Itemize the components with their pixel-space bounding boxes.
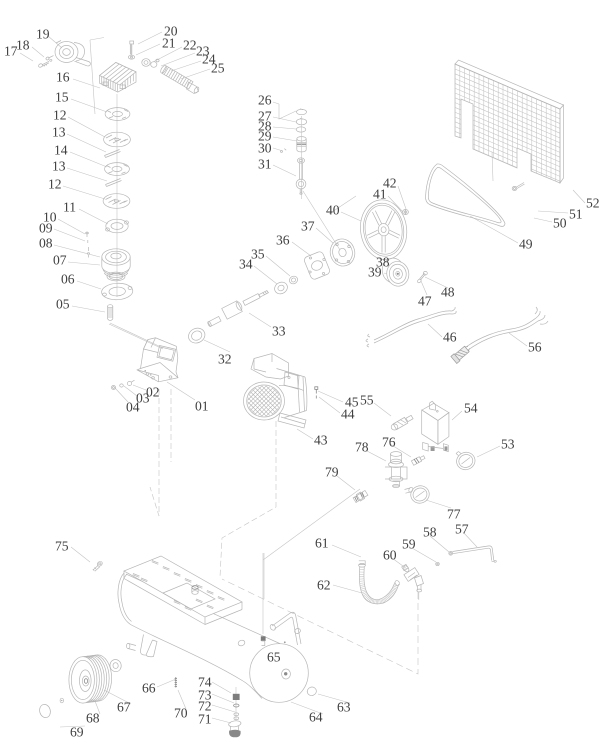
- svg-text:35: 35: [251, 247, 265, 262]
- svg-text:60: 60: [383, 548, 397, 563]
- svg-text:42: 42: [383, 176, 397, 191]
- svg-text:62: 62: [317, 578, 331, 593]
- svg-text:40: 40: [326, 203, 340, 218]
- svg-text:51: 51: [569, 207, 583, 222]
- svg-text:19: 19: [36, 27, 50, 42]
- svg-text:05: 05: [56, 297, 70, 312]
- svg-text:12: 12: [48, 177, 62, 192]
- svg-text:77: 77: [447, 507, 461, 522]
- svg-text:06: 06: [61, 272, 75, 287]
- svg-text:33: 33: [272, 324, 286, 339]
- svg-text:66: 66: [142, 681, 156, 696]
- svg-text:25: 25: [211, 61, 225, 76]
- svg-text:15: 15: [55, 90, 69, 105]
- svg-text:47: 47: [418, 294, 432, 309]
- svg-text:43: 43: [314, 433, 328, 448]
- svg-text:34: 34: [239, 257, 253, 272]
- svg-text:21: 21: [162, 36, 176, 51]
- svg-text:56: 56: [528, 340, 542, 355]
- svg-text:46: 46: [443, 330, 457, 345]
- svg-text:44: 44: [341, 407, 355, 422]
- svg-text:76: 76: [382, 435, 396, 450]
- svg-text:22: 22: [183, 38, 197, 53]
- svg-text:32: 32: [218, 352, 232, 367]
- svg-text:79: 79: [325, 465, 339, 480]
- svg-text:53: 53: [501, 437, 515, 452]
- svg-text:59: 59: [402, 537, 416, 552]
- svg-text:63: 63: [337, 700, 351, 715]
- svg-text:55: 55: [360, 393, 374, 408]
- svg-text:69: 69: [70, 725, 84, 740]
- svg-text:12: 12: [53, 108, 67, 123]
- svg-text:78: 78: [355, 440, 369, 455]
- svg-text:26: 26: [258, 93, 272, 108]
- svg-text:13: 13: [52, 159, 66, 174]
- svg-text:75: 75: [55, 539, 69, 554]
- svg-text:37: 37: [301, 219, 315, 234]
- svg-text:08: 08: [39, 236, 53, 251]
- svg-text:07: 07: [53, 253, 67, 268]
- svg-text:67: 67: [117, 700, 131, 715]
- svg-text:13: 13: [52, 125, 66, 140]
- svg-text:61: 61: [315, 536, 329, 551]
- svg-text:49: 49: [519, 237, 533, 252]
- svg-text:48: 48: [441, 285, 455, 300]
- svg-text:50: 50: [553, 216, 567, 231]
- svg-text:31: 31: [258, 157, 272, 172]
- svg-text:71: 71: [198, 712, 212, 727]
- svg-text:65: 65: [267, 650, 281, 665]
- svg-text:57: 57: [455, 522, 469, 537]
- svg-text:30: 30: [258, 141, 272, 156]
- svg-text:14: 14: [54, 143, 68, 158]
- svg-text:16: 16: [56, 70, 70, 85]
- svg-text:39: 39: [368, 265, 382, 280]
- svg-text:11: 11: [63, 200, 76, 215]
- svg-text:68: 68: [86, 711, 100, 726]
- svg-text:70: 70: [174, 706, 188, 721]
- svg-text:52: 52: [586, 196, 600, 211]
- svg-text:54: 54: [464, 401, 478, 416]
- svg-text:36: 36: [276, 233, 290, 248]
- svg-text:01: 01: [195, 399, 209, 414]
- svg-text:09: 09: [39, 221, 53, 236]
- svg-text:58: 58: [423, 525, 437, 540]
- svg-text:64: 64: [309, 710, 323, 725]
- svg-text:04: 04: [126, 400, 140, 415]
- svg-text:18: 18: [16, 38, 30, 53]
